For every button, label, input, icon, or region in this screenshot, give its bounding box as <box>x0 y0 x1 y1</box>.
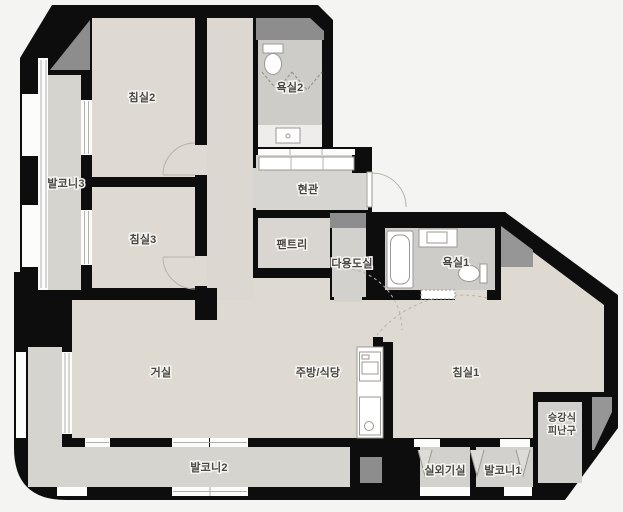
label-kitchen: 주방/식당 <box>296 365 341 379</box>
window-segment <box>62 352 72 434</box>
toilet-tank-icon <box>263 44 283 53</box>
doorway-utility <box>334 295 362 302</box>
wall-stub-living <box>195 288 217 320</box>
floor-plan: 침실2 욕실2 발코니3 침실3 현관 팬트리 다용도실 욕실1 거실 주방/식… <box>0 0 623 512</box>
stove-burner-icon <box>362 362 378 374</box>
window-segment <box>16 352 26 438</box>
label-evacuation-line2: 피난구 <box>548 424 576 437</box>
wall-kitchen-stub <box>373 337 383 348</box>
label-bathroom2: 욕실2 <box>277 80 304 94</box>
window-segment <box>81 100 92 155</box>
sink-bowl-icon <box>427 232 447 243</box>
sink-drain-icon <box>286 134 290 138</box>
window-segment <box>414 439 440 447</box>
bathtub-inner-icon <box>391 235 410 284</box>
label-bedroom3: 침실3 <box>130 232 157 246</box>
toilet-icon <box>265 54 282 75</box>
doorway-bedroom1 <box>455 290 487 302</box>
window-segment <box>57 487 87 496</box>
wall-kitchen-bedroom1 <box>383 342 393 438</box>
window-entrance <box>258 149 355 155</box>
label-outdoor-unit: 실외기실 <box>424 463 465 477</box>
shoe-cabinet <box>259 157 354 170</box>
stove-knob-icon <box>362 355 369 359</box>
front-door-leaf <box>367 172 372 207</box>
label-bedroom2: 침실2 <box>129 90 156 104</box>
room-balcony2 <box>28 447 350 487</box>
toilet-tank-icon <box>480 264 487 283</box>
window-segment <box>500 439 530 447</box>
label-bedroom1: 침실1 <box>453 365 480 379</box>
room-corridor <box>207 18 253 300</box>
kitchen-sink-drain-icon <box>365 422 374 431</box>
doorway-bedroom2 <box>195 145 207 175</box>
window-segment <box>504 487 532 496</box>
window-segment <box>81 210 92 265</box>
label-balcony1: 발코니1 <box>484 463 521 477</box>
shaft-utility <box>330 213 366 228</box>
window-segment <box>22 205 38 267</box>
window-segment <box>420 487 470 496</box>
label-balcony3: 발코니3 <box>47 176 84 190</box>
label-evacuation-line1: 승강식 <box>548 411 576 424</box>
label-living: 거실 <box>151 365 172 379</box>
label-bathroom1: 욕실1 <box>443 255 470 269</box>
label-entrance: 현관 <box>298 182 319 196</box>
room-balcony2-side <box>28 347 62 447</box>
doorway-bedroom3 <box>195 256 207 286</box>
floor-plan-page: 침실2 욕실2 발코니3 침실3 현관 팬트리 다용도실 욕실1 거실 주방/식… <box>0 0 623 512</box>
door-bathroom1 <box>421 290 455 299</box>
label-utility: 다용도실 <box>331 256 372 270</box>
doorway-entrance-corridor <box>253 168 258 208</box>
label-balcony2: 발코니2 <box>190 460 227 474</box>
label-pantry: 팬트리 <box>277 237 308 251</box>
shaft-balcony2 <box>360 457 382 483</box>
window-segment <box>22 94 38 156</box>
